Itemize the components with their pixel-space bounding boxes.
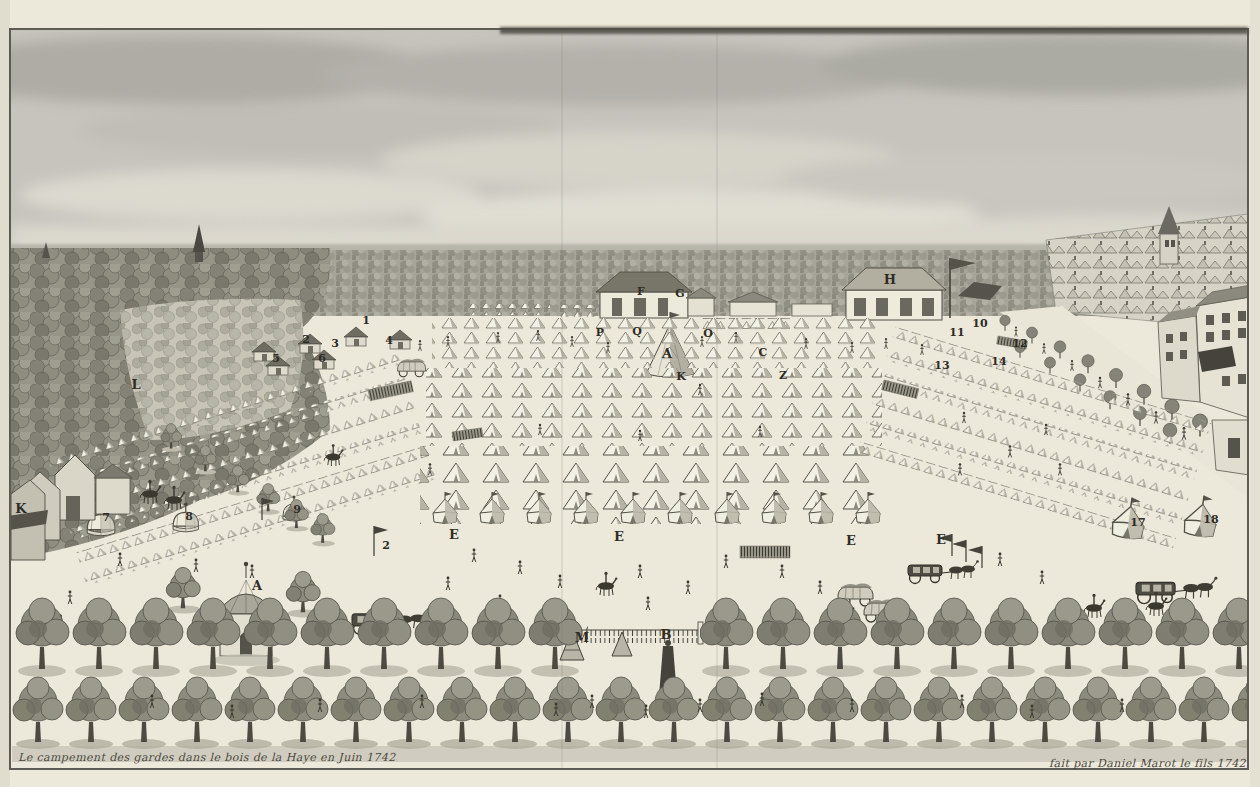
marker-letter-e-4: E (936, 532, 946, 547)
marker-letter-e-1: E (449, 527, 459, 542)
marker-letter-a-central-tent: A (661, 346, 673, 361)
marker-num-2: 2 (302, 333, 310, 346)
marker-num-10: 10 (972, 317, 988, 330)
marker-num-7: 7 (102, 511, 110, 524)
marker-num-18: 18 (1203, 513, 1219, 526)
marker-letter-k-left-building: K (15, 501, 27, 516)
paper-left-edge (0, 0, 10, 787)
marker-num-2-flag: 2 (382, 539, 390, 552)
marker-letter-z: Z (779, 369, 787, 382)
marker-num-13: 13 (934, 359, 949, 372)
marker-num-9: 9 (293, 503, 301, 516)
marker-num-4: 4 (385, 334, 393, 347)
drawing-encampment-haagse-bos: Le campement des gardes dans le bois de … (0, 0, 1260, 787)
inscription-signature: fait par Daniel Marot le fils 1742 (1049, 757, 1247, 770)
avenue-tree-row-2 (12, 664, 1248, 760)
marker-letter-h-building: H (884, 272, 896, 287)
marker-num-12: 12 (1012, 337, 1027, 350)
marker-num-6: 6 (318, 352, 326, 365)
marker-letter-g-building: G (675, 287, 684, 300)
paper-right-edge (1250, 0, 1260, 787)
marker-letter-c: C (759, 346, 768, 359)
marker-num-3: 3 (331, 337, 339, 350)
steeple-left-base (195, 252, 203, 262)
marker-num-17: 17 (1130, 516, 1145, 529)
marker-letter-o: O (703, 327, 713, 340)
marker-letter-e-3: E (846, 533, 856, 548)
inscription-left: Le campement des gardes dans le bois de … (18, 751, 396, 764)
marker-num-1: 1 (362, 314, 370, 327)
marker-letter-p: P (596, 326, 604, 339)
marker-num-5: 5 (272, 352, 280, 365)
drawing-surface: Le campement des gardes dans le bois de … (0, 0, 1260, 787)
marker-letter-e-2: E (614, 529, 624, 544)
marker-letter-k-field: K (676, 370, 686, 383)
tower-window2 (1171, 240, 1175, 247)
tent-block-center (420, 318, 882, 524)
tower-window (1165, 240, 1169, 247)
marker-letter-f-building: F (637, 285, 645, 298)
marker-num-14: 14 (991, 355, 1007, 368)
church-tower (1160, 234, 1178, 264)
marker-letter-l-forest: L (131, 377, 140, 392)
marker-letter-a-pavilion: A (251, 578, 263, 593)
marker-letter-m-enclosure: M (575, 630, 589, 645)
marker-num-11: 11 (949, 326, 964, 339)
marker-letter-q: Q (632, 325, 642, 338)
top-edge-smudge (500, 27, 1248, 34)
marker-letter-b-enclosure: B (661, 627, 672, 642)
marker-num-8: 8 (185, 510, 193, 523)
